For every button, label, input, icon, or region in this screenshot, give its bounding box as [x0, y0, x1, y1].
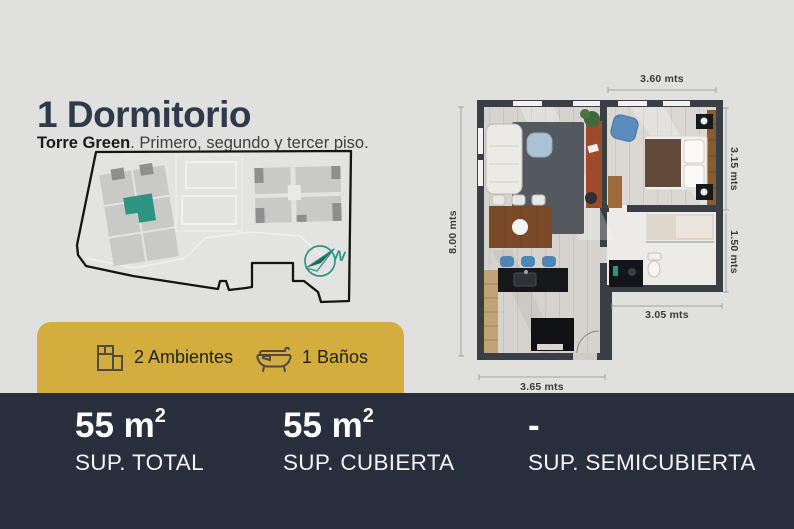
dimension-left: 8.00 mts: [447, 187, 459, 277]
summary-semicubierta: - SUP. SEMICUBIERTA: [528, 407, 756, 476]
floor-plan: [440, 70, 740, 395]
dimension-inner-bottom: 3.05 mts: [622, 309, 712, 321]
summary-total-label: SUP. TOTAL: [75, 450, 204, 476]
summary-semicubierta-label: SUP. SEMICUBIERTA: [528, 450, 756, 476]
summary-cubierta-label: SUP. CUBIERTA: [283, 450, 454, 476]
summary-cubierta-value: 55 m2: [283, 407, 454, 446]
summary-semicubierta-value: -: [528, 407, 756, 446]
site-plan: N: [60, 145, 380, 310]
summary-panel: 55 m2 SUP. TOTAL 55 m2 SUP. CUBIERTA - S…: [0, 393, 794, 529]
feature-banos: 1 Baños: [255, 322, 368, 393]
dimension-top: 3.60 mts: [617, 73, 707, 85]
floorplan-rooms-icon: [95, 343, 125, 373]
features-bar: 2 Ambientes 1 Baños: [37, 322, 404, 393]
summary-total: 55 m2 SUP. TOTAL: [75, 407, 204, 476]
summary-total-value: 55 m2: [75, 407, 204, 446]
summary-cubierta: 55 m2 SUP. CUBIERTA: [283, 407, 454, 476]
building-cluster-right: [254, 166, 341, 223]
feature-banos-label: 1 Baños: [302, 347, 368, 368]
unit-sheet: 1 Dormitorio Torre Green. Primero, segun…: [0, 0, 794, 529]
page-title: 1 Dormitorio: [37, 94, 251, 136]
dimension-right-lower: 1.50 mts: [728, 207, 740, 297]
dimension-bottom: 3.65 mts: [497, 381, 587, 393]
dimension-right-upper: 3.15 mts: [728, 124, 740, 214]
feature-ambientes-label: 2 Ambientes: [134, 347, 233, 368]
feature-ambientes: 2 Ambientes: [95, 322, 233, 393]
bathtub-icon: [255, 342, 293, 374]
